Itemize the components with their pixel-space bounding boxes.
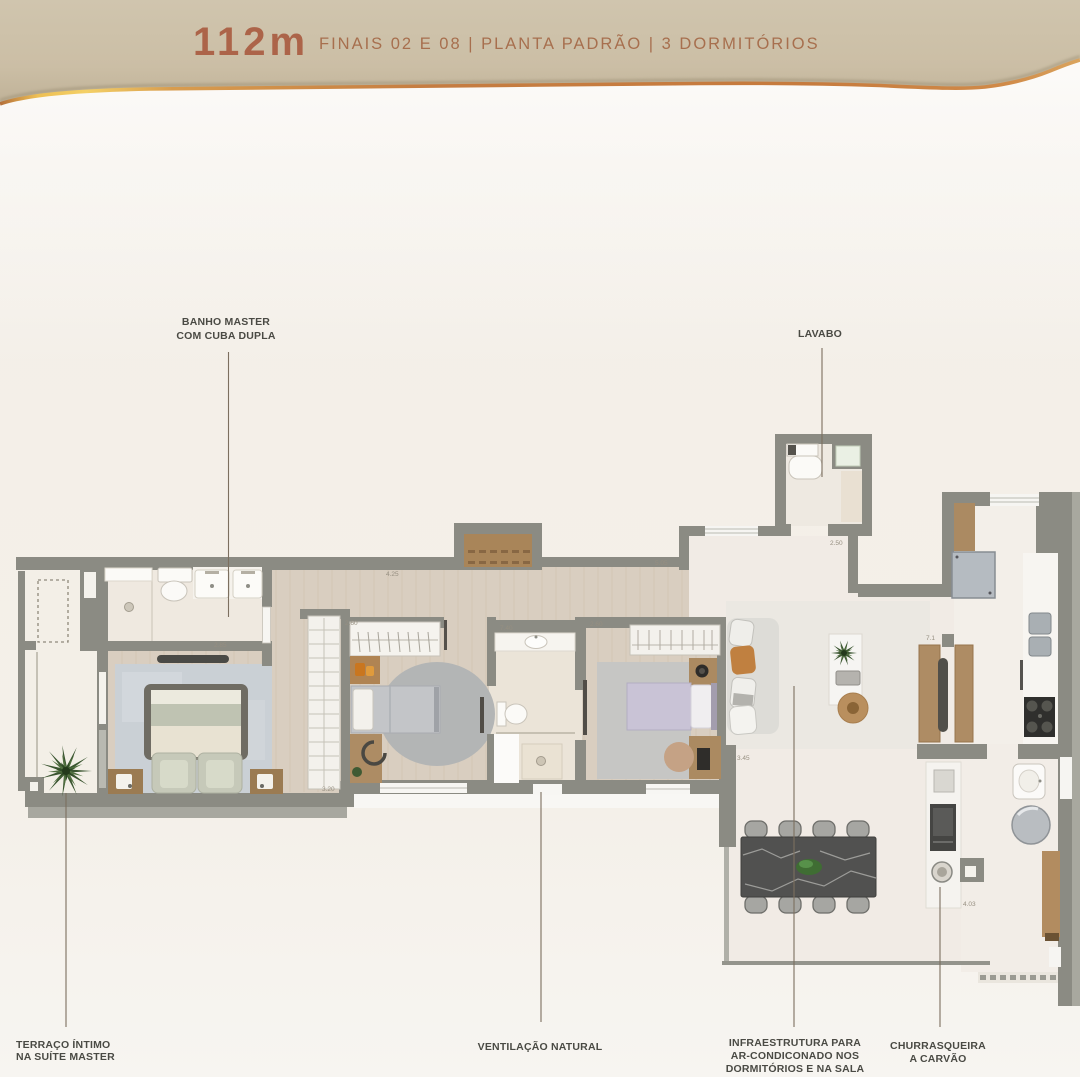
- svg-text:7.1: 7.1: [926, 635, 935, 642]
- svg-text:NA SUÍTE MASTER: NA SUÍTE MASTER: [16, 1050, 115, 1063]
- svg-text:TERRAÇO ÍNTIMO: TERRAÇO ÍNTIMO: [16, 1038, 110, 1051]
- svg-text:CHURRASQUEIRA: CHURRASQUEIRA: [890, 1040, 986, 1052]
- svg-text:FINAIS 02 E 08 | PLANTA PADRÃO: FINAIS 02 E 08 | PLANTA PADRÃO | 3 DORMI…: [319, 33, 820, 53]
- svg-text:3.45: 3.45: [737, 755, 750, 762]
- svg-text:3.20: 3.20: [322, 786, 335, 793]
- svg-text:DORMITÓRIOS E NA SALA: DORMITÓRIOS E NA SALA: [726, 1062, 865, 1075]
- svg-text:112m: 112m: [193, 20, 309, 64]
- svg-text:5.05: 5.05: [655, 560, 668, 567]
- svg-text:4.25: 4.25: [386, 571, 399, 578]
- svg-text:AR-CONDICONADO NOS: AR-CONDICONADO NOS: [731, 1050, 859, 1062]
- svg-text:2.60: 2.60: [345, 620, 358, 627]
- svg-text:COM CUBA DUPLA: COM CUBA DUPLA: [176, 330, 275, 342]
- svg-text:LAVABO: LAVABO: [798, 328, 842, 340]
- svg-text:2.50: 2.50: [830, 540, 843, 547]
- svg-text:A CARVÃO: A CARVÃO: [909, 1052, 966, 1065]
- svg-text:INFRAESTRUTURA PARA: INFRAESTRUTURA PARA: [729, 1037, 861, 1049]
- svg-text:2.85: 2.85: [214, 642, 227, 649]
- svg-text:BANHO MASTER: BANHO MASTER: [182, 316, 270, 328]
- svg-text:VENTILAÇÃO NATURAL: VENTILAÇÃO NATURAL: [478, 1040, 603, 1053]
- svg-text:7.40: 7.40: [500, 625, 513, 632]
- svg-text:4.03: 4.03: [963, 901, 976, 908]
- svg-text:2.60: 2.60: [590, 621, 603, 628]
